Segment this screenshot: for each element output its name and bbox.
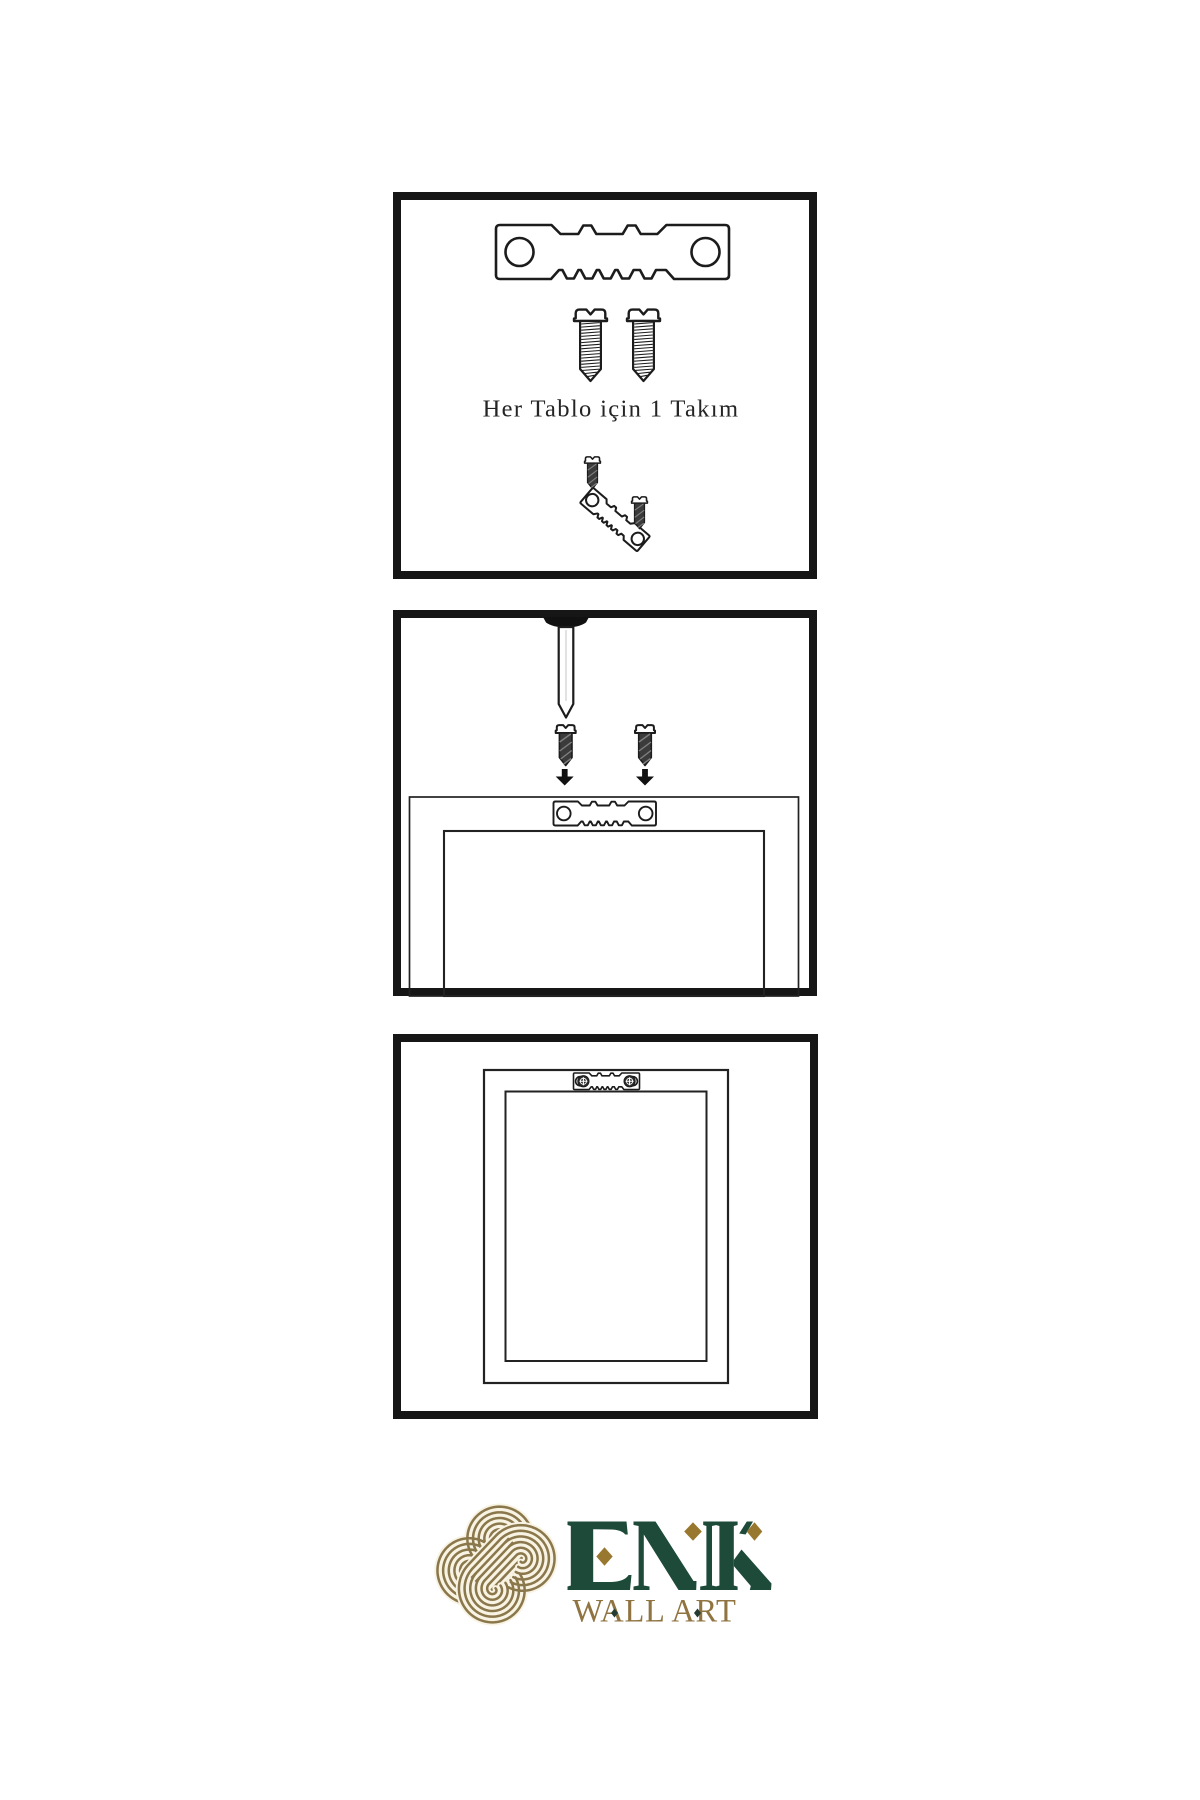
svg-text:WALL ART: WALL ART xyxy=(573,1594,737,1630)
svg-text:Her Tablo için 1 Takım: Her Tablo için 1 Takım xyxy=(483,396,740,423)
